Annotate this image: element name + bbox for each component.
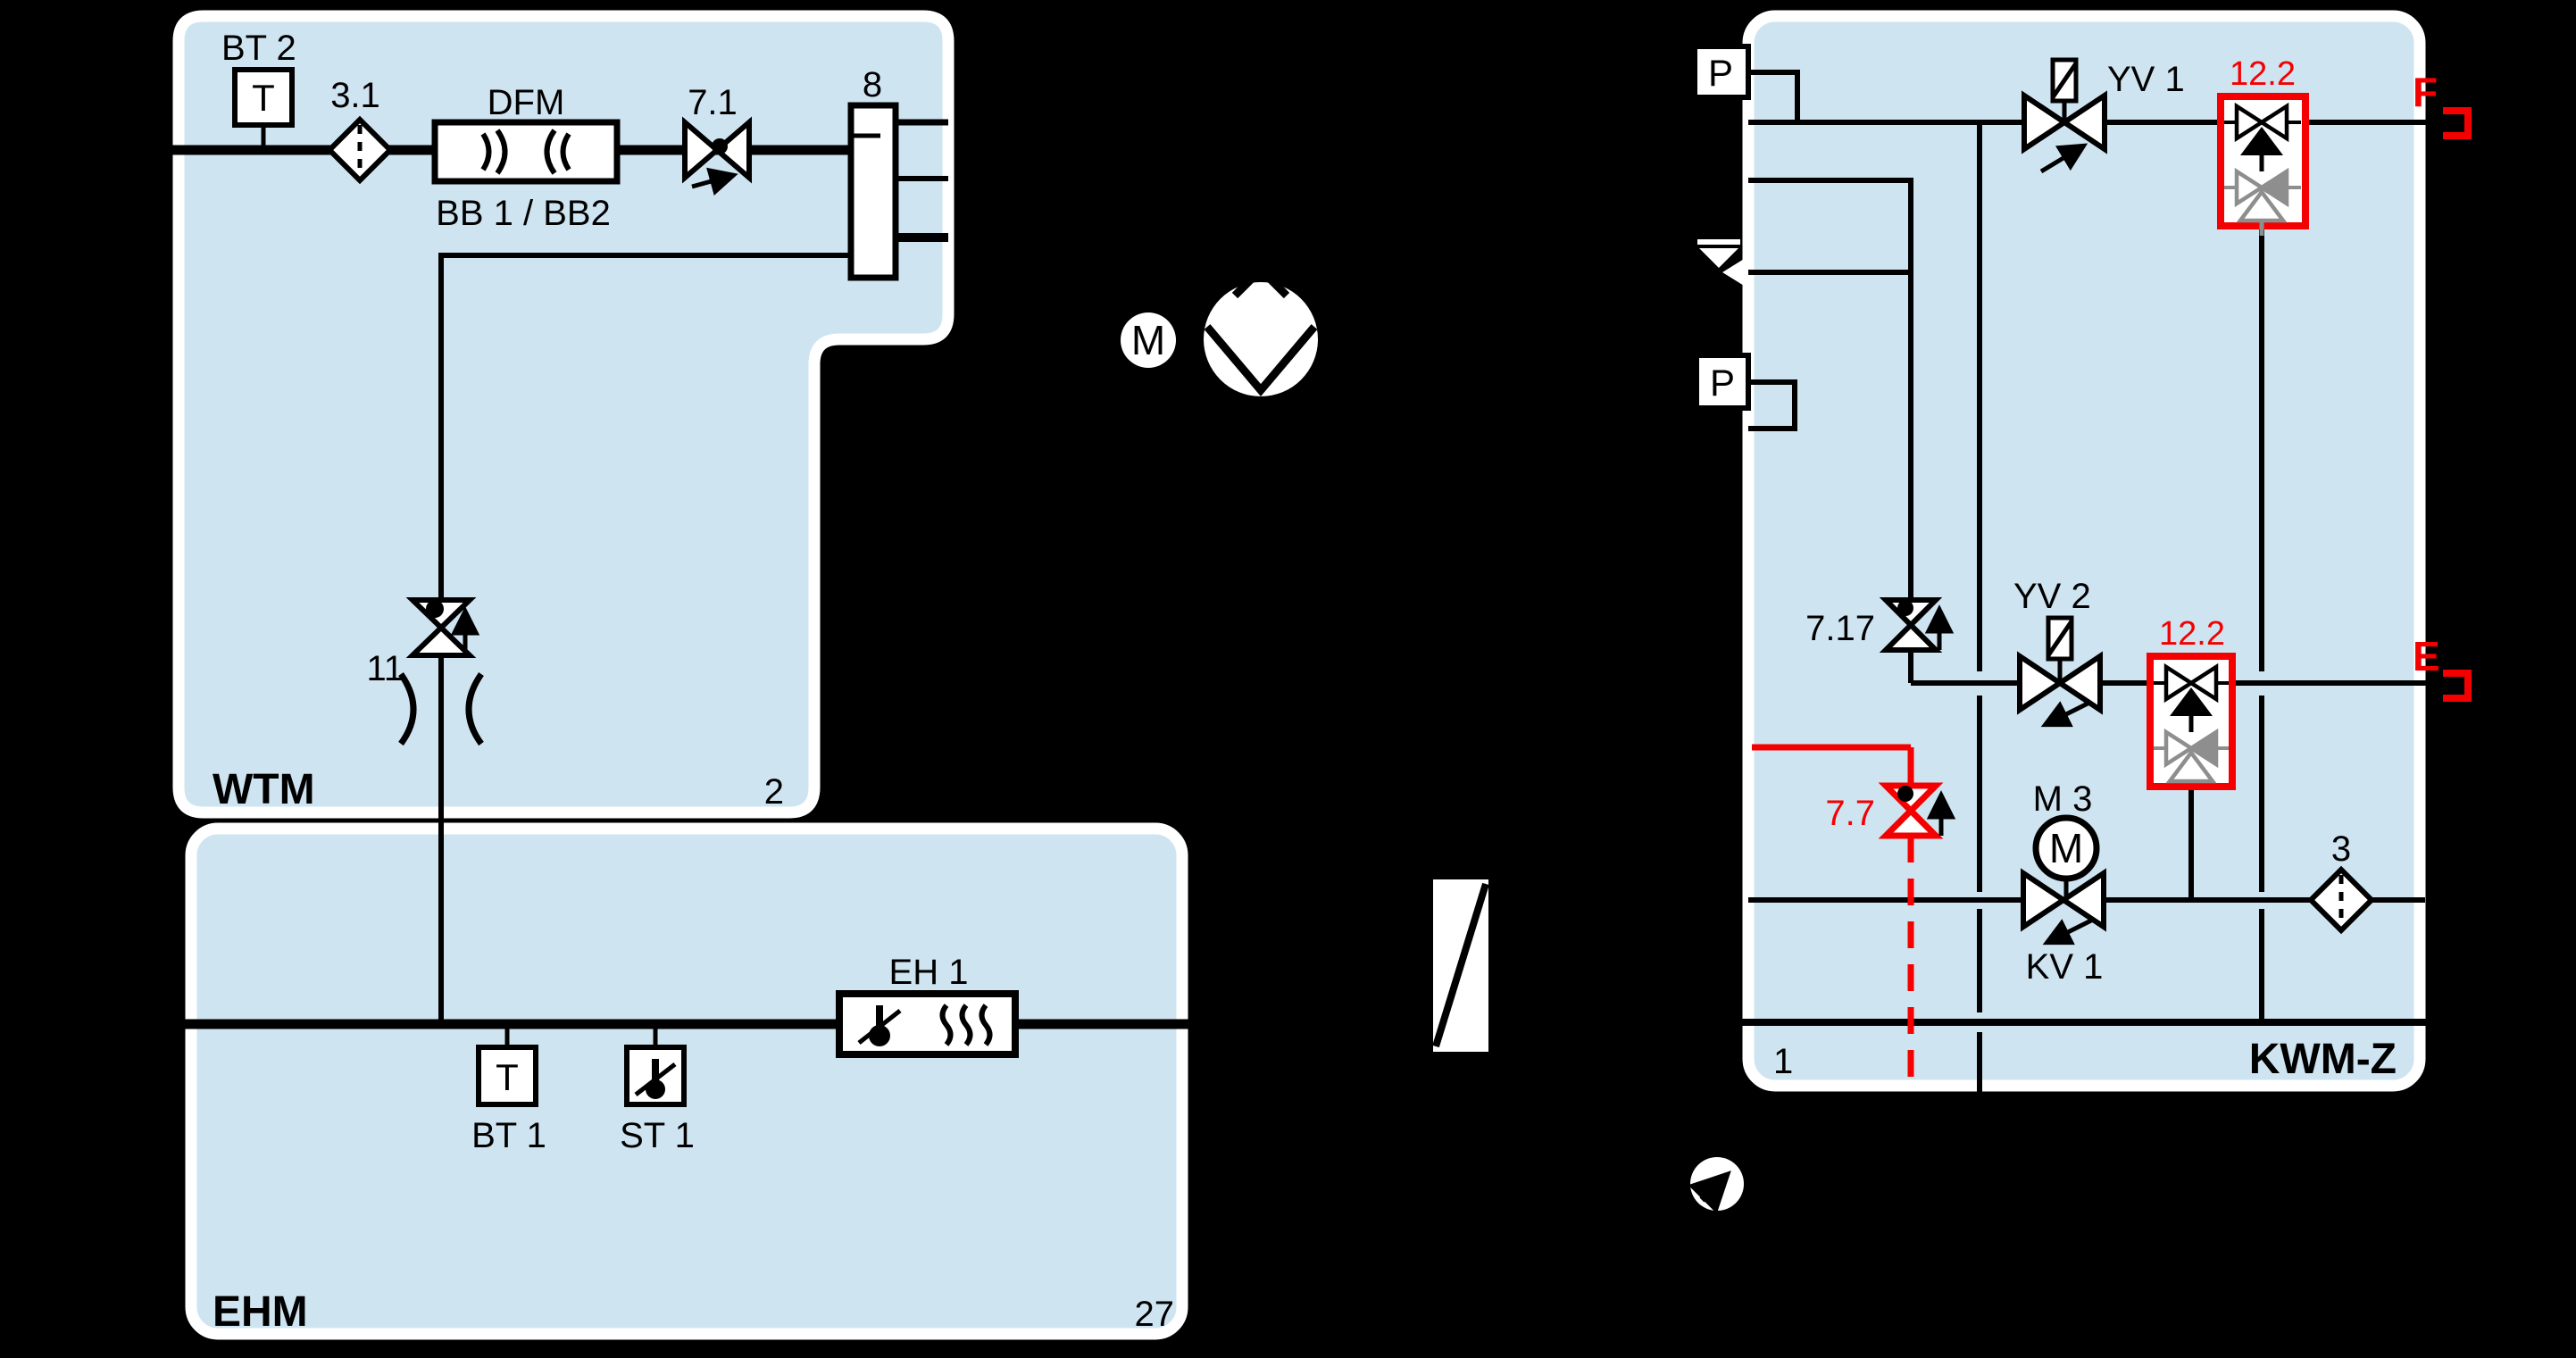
bt2-symbol: T [252,77,275,119]
safety-group-top-12_2: 12.2 [2221,55,2305,236]
pump-motor-label: M [1131,317,1165,363]
piping-diagram: WTM 2 EHM 27 1 KWM-Z T BT 2 3.1 [0,0,2576,1358]
exchanger-symbol [1433,879,1488,1052]
yv1-label: YV 1 [2107,60,2185,99]
kv1-label: KV 1 [2026,947,2104,987]
flow-direction-badge [1690,1157,1744,1211]
ehm-block-name: EHM [213,1288,308,1336]
valve-7_1-dot [712,138,728,154]
m3-label: M 3 [2033,779,2093,819]
backflow-mid-label: 12.2 [2159,615,2225,653]
dfm-sublabel: BB 1 / BB2 [436,194,611,233]
valve-7_7-dot [1897,786,1913,802]
valve-7_7-label: 7.7 [1825,794,1875,833]
valve-11-dot [426,600,444,618]
pump-group: M [1121,272,1318,396]
ehm-block-number: 27 [1135,1295,1175,1334]
drain-funnel-icon [1697,242,1748,288]
kwmz-block-number: 1 [1773,1042,1793,1081]
connector-f-bracket-icon [2443,111,2468,136]
bt1-symbol: T [496,1056,519,1098]
valve-7_17-dot [1897,600,1913,616]
eh1-label: EH 1 [889,953,969,992]
filter-3-label: 3 [2331,829,2351,869]
backflow-top-label: 12.2 [2230,55,2296,93]
bt1-label: BT 1 [471,1116,546,1155]
filter-3_1-label: 3.1 [330,76,380,115]
vessel-8-body [851,105,896,278]
pressure-top-symbol: P [1708,52,1733,94]
safety-group-mid-12_2: 12.2 [2150,615,2232,787]
eh1-box [839,994,1015,1054]
wtm-block-number: 2 [764,772,784,812]
dfm-label: DFM [488,83,565,122]
vessel-8-label: 8 [863,65,882,104]
connector-f-label: F [2413,69,2438,115]
yv2-label: YV 2 [2013,577,2091,616]
connector-e-label: E [2413,633,2440,679]
valve-11-label: 11 [366,649,404,688]
pressure-mid-symbol: P [1710,362,1735,404]
wtm-block-name: WTM [213,766,315,813]
dfm-box [435,122,617,181]
valve-7_17-label: 7.17 [1805,609,1875,648]
valve-7_1-label: 7.1 [688,83,738,122]
bt2-label: BT 2 [221,29,296,68]
kwmz-block-name: KWM-Z [2249,1036,2397,1083]
connector-e-bracket-icon [2443,673,2468,698]
schematic-canvas: WTM 2 EHM 27 1 KWM-Z T BT 2 3.1 [0,0,2576,1358]
m3-motor-symbol: M [2049,825,2083,871]
st1-label: ST 1 [620,1116,695,1155]
